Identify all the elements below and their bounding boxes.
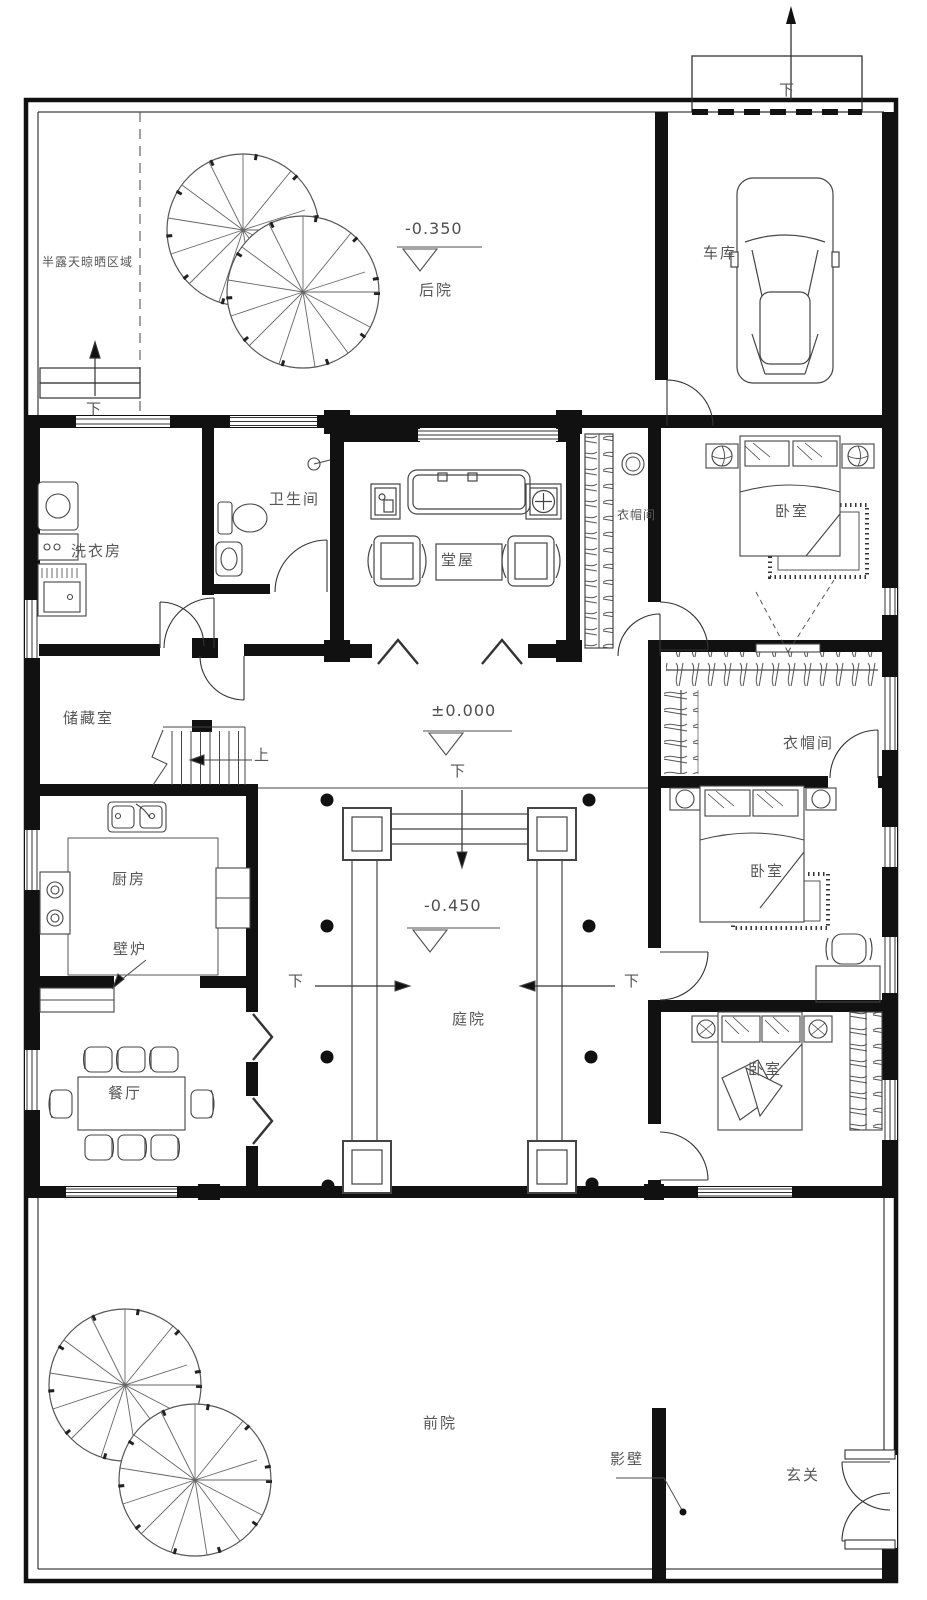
cloakroom-right-label: 衣帽间 xyxy=(783,736,834,751)
storage-label: 储藏室 xyxy=(63,711,114,726)
floor-plan: 半露天晾晒区域 后院 -0.350 车库 下 下 洗衣房 卫生间 堂屋 衣帽间 … xyxy=(0,0,927,1600)
elevation-symbols xyxy=(397,247,512,952)
front-yard-label: 前院 xyxy=(423,1416,457,1431)
car xyxy=(731,178,839,383)
dining-label: 餐厅 xyxy=(108,1086,142,1101)
stairs xyxy=(152,727,252,785)
hall-double-door xyxy=(378,640,522,664)
backyard-steps xyxy=(40,342,140,398)
fireplace-label: 壁炉 xyxy=(113,942,147,957)
bedroom-top-furniture xyxy=(706,436,874,652)
bedroom-bottom-furniture xyxy=(692,1012,882,1130)
steps-down-marker: 下 xyxy=(86,402,101,417)
screen-wall-label: 影壁 xyxy=(610,1452,644,1467)
backyard-elevation: -0.350 xyxy=(405,221,463,237)
screen-wall-leader xyxy=(616,1478,687,1516)
backyard-label: 后院 xyxy=(419,283,453,298)
hall-label: 堂屋 xyxy=(441,553,475,568)
desk xyxy=(816,966,880,1002)
tv xyxy=(756,644,820,652)
entrance-label: 玄关 xyxy=(786,1468,820,1483)
bathroom-label: 卫生间 xyxy=(269,492,320,507)
bedroom-bottom-label: 卧室 xyxy=(748,1062,782,1077)
courtyard-elevation: -0.450 xyxy=(424,898,482,914)
garage-door xyxy=(692,6,862,112)
desk-chair xyxy=(832,934,866,964)
bedroom-mid-label: 卧室 xyxy=(750,864,784,879)
stairs-up-marker: 上 xyxy=(254,748,269,763)
garage-label: 车库 xyxy=(703,246,737,261)
kitchen-label: 厨房 xyxy=(112,872,146,887)
up-arrow-icon xyxy=(190,755,204,765)
laundry-label: 洗衣房 xyxy=(71,544,122,559)
courtyard-veranda xyxy=(258,788,648,1193)
exit-arrow-icon xyxy=(786,6,796,24)
dining-furniture xyxy=(49,1047,214,1160)
bedroom-top-label: 卧室 xyxy=(775,504,809,519)
bed xyxy=(740,436,840,556)
frontyard-trees xyxy=(49,1309,271,1556)
courtyard-right-down-marker: 下 xyxy=(624,974,639,989)
bedroom-mid-furniture xyxy=(670,786,880,1002)
courtyard-label: 庭院 xyxy=(452,1012,486,1027)
cloakroom-top-wardrobe xyxy=(585,434,644,648)
stove xyxy=(40,872,70,934)
step-arrow-icon xyxy=(90,342,100,358)
courtyard-top-down-marker: 下 xyxy=(450,764,465,779)
drying-area-label: 半露天晾晒区域 xyxy=(42,256,133,268)
cloakroom-right-wardrobe xyxy=(664,652,878,774)
floorplan-drawing xyxy=(0,0,927,1600)
backyard-trees xyxy=(167,154,379,368)
cloakroom-top-label: 衣帽间 xyxy=(617,509,656,521)
ground-elevation: ±0.000 xyxy=(431,703,496,719)
bed xyxy=(700,786,804,922)
garage-down-marker: 下 xyxy=(779,83,794,98)
bathroom-fixtures xyxy=(216,458,330,576)
courtyard-left-down-marker: 下 xyxy=(288,974,303,989)
